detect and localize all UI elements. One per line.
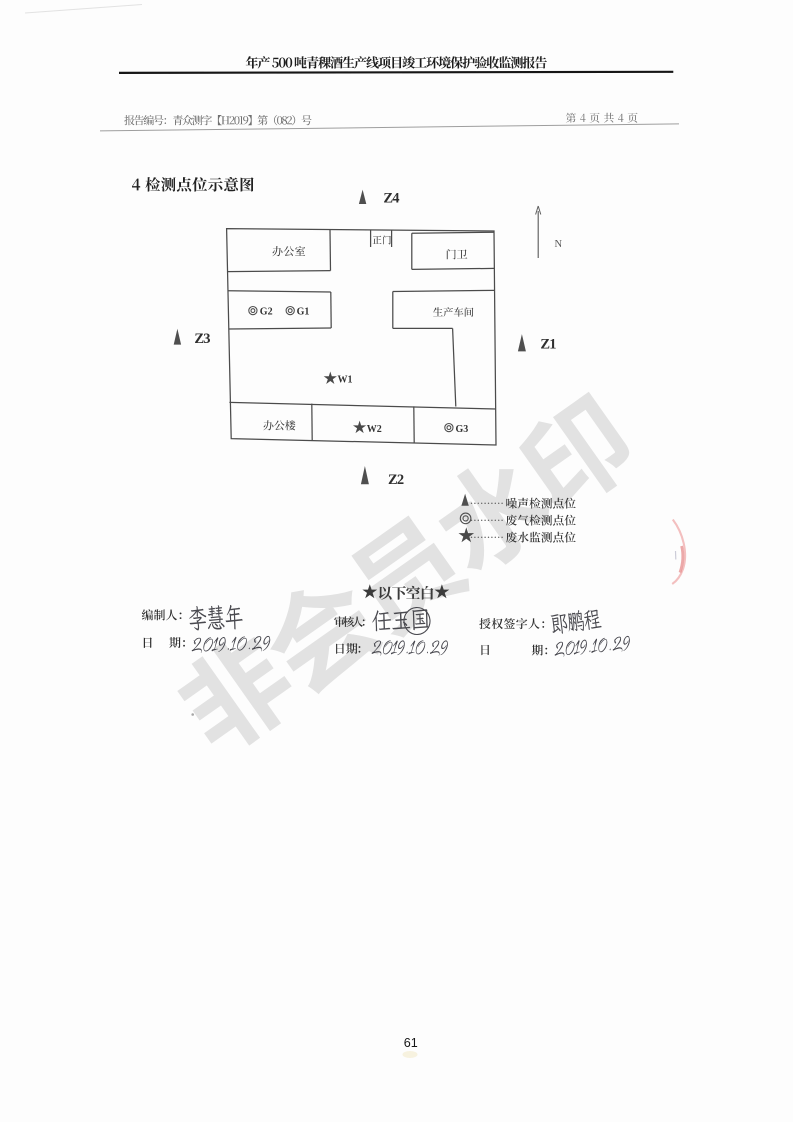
svg-text:W1: W1 [338,375,353,386]
svg-text:Z1: Z1 [540,336,556,352]
svg-text:W2: W2 [367,424,382,435]
svg-text:Z4: Z4 [383,190,399,206]
svg-text:N: N [555,239,563,250]
svg-text:Z2: Z2 [388,472,404,488]
svg-text:G3: G3 [456,424,469,435]
svg-text:G2: G2 [260,306,273,317]
svg-text:Z3: Z3 [194,331,210,347]
svg-text:61: 61 [404,1036,418,1050]
svg-text:G1: G1 [297,306,310,317]
